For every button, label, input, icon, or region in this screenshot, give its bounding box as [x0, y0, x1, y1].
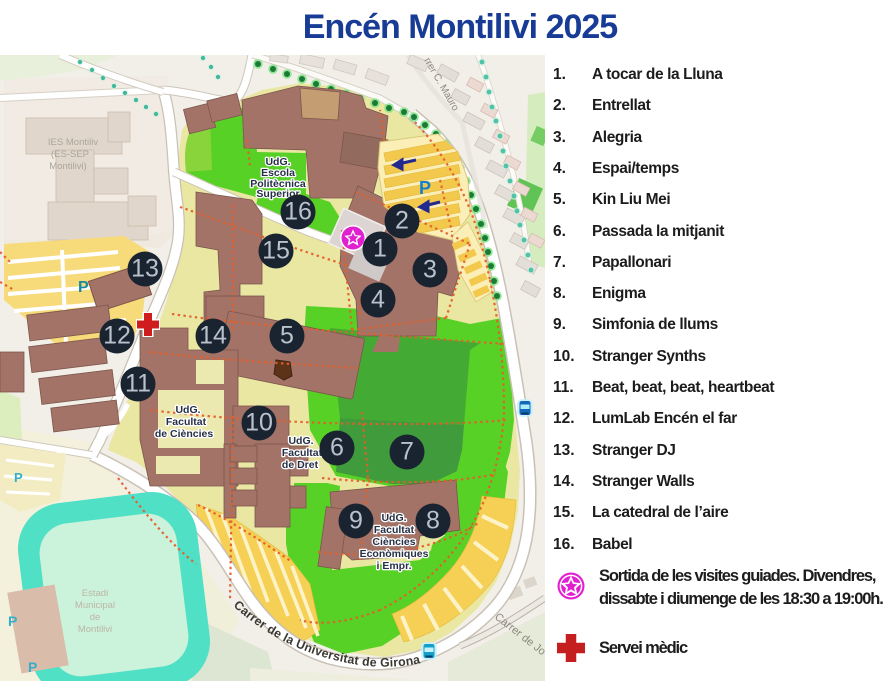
svg-text:de: de	[90, 612, 101, 623]
svg-text:16: 16	[284, 198, 312, 226]
svg-text:i Empr.: i Empr.	[376, 560, 411, 572]
svg-text:15: 15	[262, 237, 290, 265]
svg-text:UdG.: UdG.	[381, 512, 406, 524]
svg-text:P: P	[14, 470, 23, 485]
svg-text:4: 4	[371, 286, 385, 314]
svg-text:Municipal: Municipal	[75, 600, 115, 611]
svg-text:(ES-SEP: (ES-SEP	[51, 149, 89, 160]
svg-text:P: P	[419, 178, 431, 198]
svg-text:Ciències: Ciències	[372, 536, 415, 548]
svg-text:Facultat: Facultat	[374, 524, 415, 536]
svg-text:Estadi: Estadi	[82, 588, 108, 599]
svg-text:5: 5	[280, 322, 294, 350]
svg-text:13: 13	[131, 255, 159, 283]
svg-text:6: 6	[330, 434, 344, 462]
svg-text:UdG.: UdG.	[175, 404, 200, 416]
svg-text:14: 14	[199, 322, 227, 350]
svg-text:1: 1	[373, 235, 387, 263]
svg-text:Facultat: Facultat	[166, 416, 207, 428]
svg-text:2: 2	[395, 207, 409, 235]
svg-text:de Dret: de Dret	[282, 459, 319, 471]
svg-text:11: 11	[125, 370, 151, 398]
svg-text:12: 12	[103, 322, 131, 350]
svg-text:3: 3	[423, 256, 437, 284]
svg-text:Montilivi): Montilivi)	[49, 161, 86, 172]
svg-text:P: P	[78, 279, 89, 296]
svg-text:Montilivi: Montilivi	[78, 624, 112, 635]
svg-text:10: 10	[245, 409, 273, 437]
svg-text:P: P	[8, 613, 17, 629]
svg-text:8: 8	[426, 507, 440, 535]
svg-text:9: 9	[349, 507, 363, 535]
svg-text:de Ciències: de Ciències	[155, 428, 214, 440]
svg-text:P: P	[28, 659, 37, 675]
svg-text:Facultat: Facultat	[282, 447, 323, 459]
svg-text:IES Montiliv: IES Montiliv	[48, 137, 98, 148]
svg-text:Econòmiques: Econòmiques	[360, 548, 429, 560]
svg-text:7: 7	[400, 438, 414, 466]
svg-text:UdG.: UdG.	[288, 435, 313, 447]
